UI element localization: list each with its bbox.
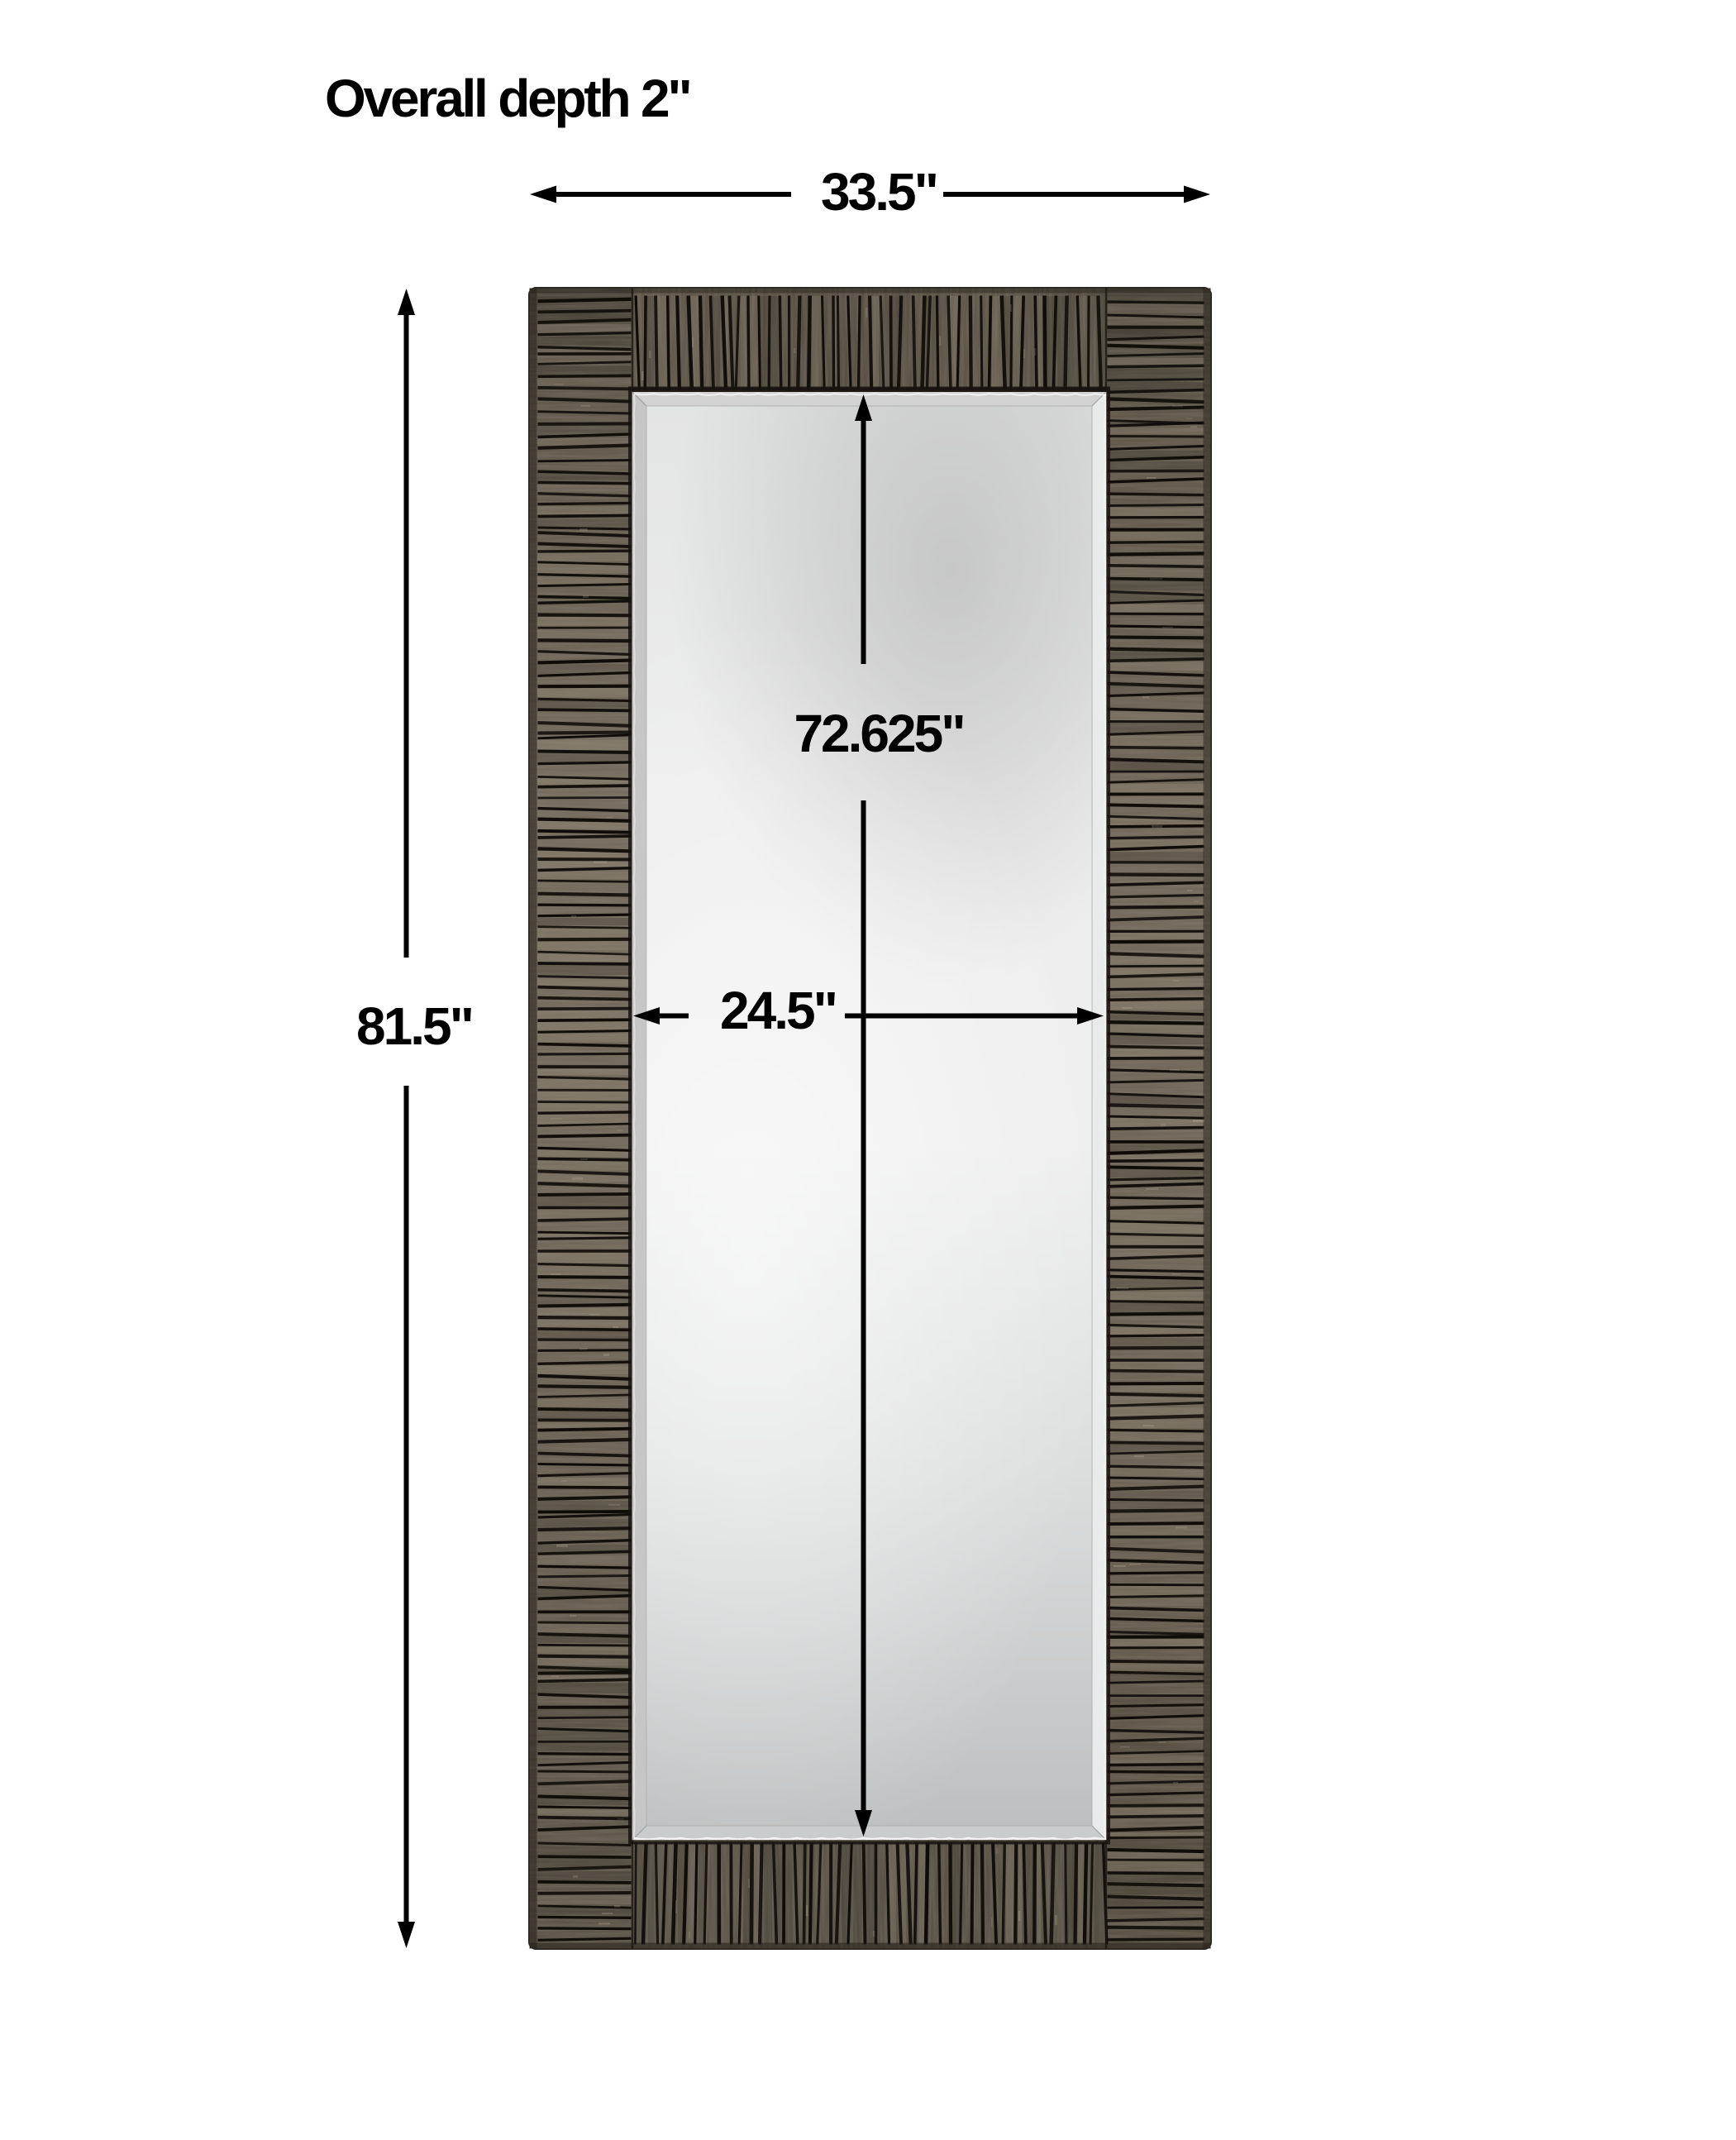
svg-text:Overall depth 2": Overall depth 2" (325, 69, 690, 128)
svg-text:72.625": 72.625" (794, 704, 963, 763)
svg-text:24.5": 24.5" (720, 981, 836, 1040)
svg-text:33.5": 33.5" (821, 162, 937, 222)
svg-text:81.5": 81.5" (356, 996, 472, 1056)
